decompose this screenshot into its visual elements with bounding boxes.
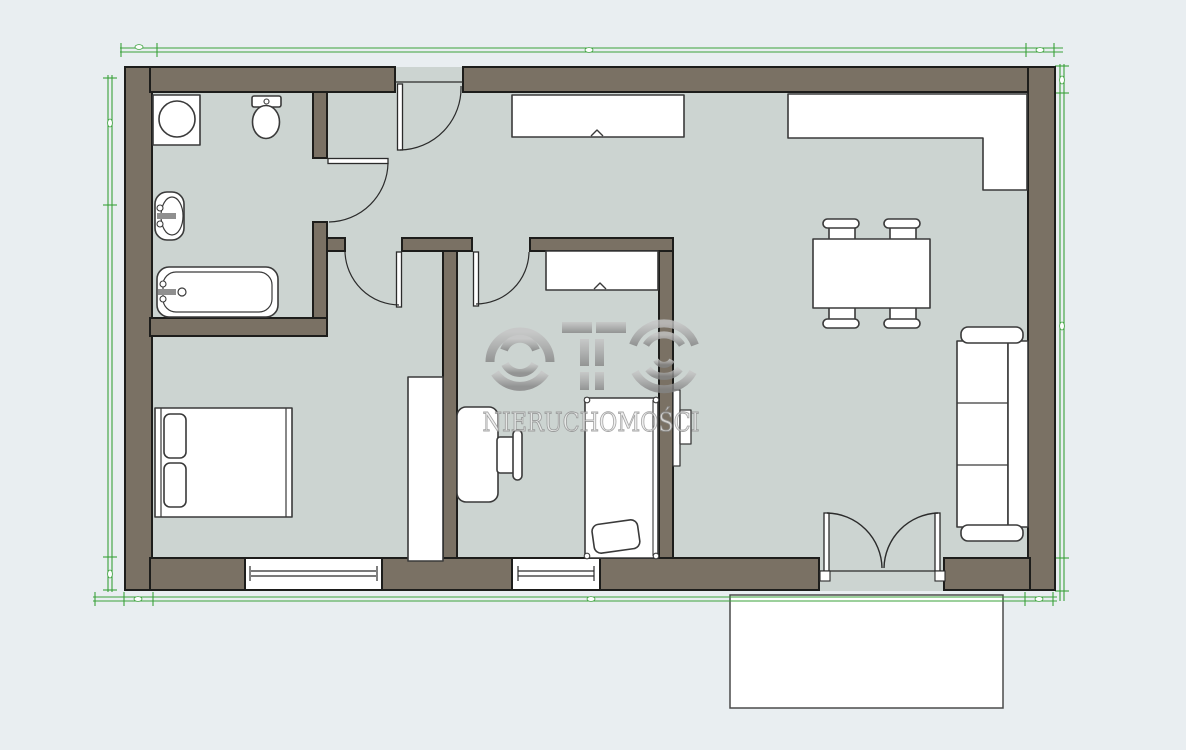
double-bed: [155, 408, 292, 517]
sofa: [957, 327, 1028, 541]
exterior-wall-bottom-1: [150, 558, 245, 590]
window-bedroom1: [245, 558, 382, 590]
bathtub: [157, 267, 278, 317]
exterior-wall-bottom-4: [944, 558, 1030, 590]
dining-chair: [823, 219, 859, 241]
exterior-wall-bottom-3: [600, 558, 819, 590]
exterior-wall-top-left: [150, 67, 395, 92]
terrace: [730, 595, 1003, 708]
watermark-subtitle: NIERUCHOMOŚCI: [483, 406, 700, 438]
floor-plan-page: NIERUCHOMOŚCI: [0, 0, 1186, 750]
bedroom2-living-wall: [659, 251, 673, 558]
pillow: [164, 414, 186, 458]
bathroom-wall-upper: [313, 92, 327, 158]
hall-bedroom2-wall: [530, 238, 673, 251]
exterior-wall-top-right: [463, 67, 1028, 92]
dining-chair: [884, 306, 920, 328]
pillow: [591, 519, 641, 554]
dining-chair: [823, 306, 859, 328]
toilet: [252, 96, 281, 139]
entrance-gap-floor: [395, 67, 463, 93]
floor-plan-drawing: NIERUCHOMOŚCI: [0, 0, 1186, 750]
bedroom2-closet: [546, 251, 658, 290]
wardrobe: [408, 377, 443, 561]
hall-wall-stub: [327, 238, 345, 251]
bedroom-divider-wall: [443, 251, 457, 558]
exterior-wall-right: [1028, 67, 1055, 590]
washbasin: [155, 192, 184, 240]
hall-bedroom1-wall: [402, 238, 472, 251]
window-bedroom2: [512, 558, 600, 590]
washing-machine: [153, 95, 200, 145]
pillow: [164, 463, 186, 507]
bathroom-wall-lower: [313, 222, 327, 322]
bathroom-wall-bottom: [150, 318, 327, 336]
dining-chair: [884, 219, 920, 241]
exterior-wall-left: [125, 67, 152, 590]
exterior-wall-bottom-2: [382, 558, 512, 590]
dining-table: [813, 239, 930, 308]
hallway-closet: [512, 95, 684, 137]
